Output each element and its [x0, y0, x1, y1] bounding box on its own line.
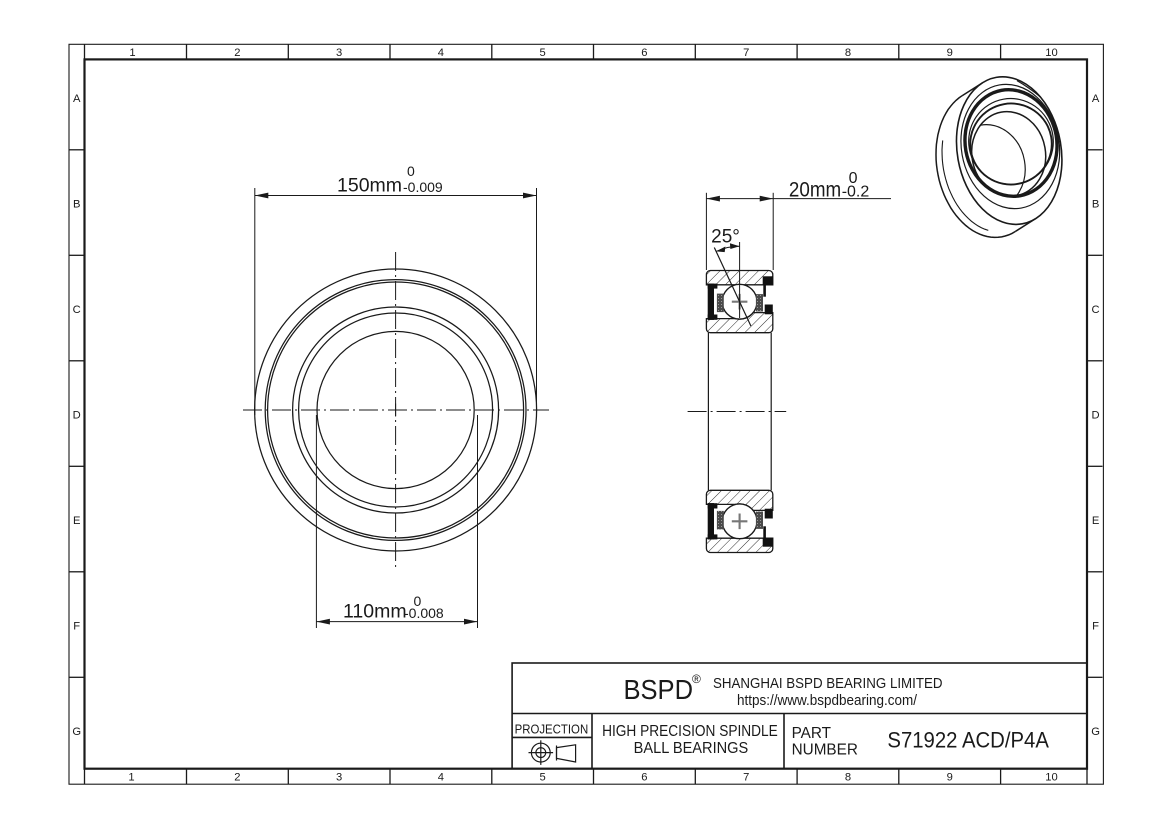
svg-text:HIGH PRECISION SPINDLE: HIGH PRECISION SPINDLE [602, 723, 778, 740]
svg-text:25°: 25° [711, 227, 740, 248]
svg-text:BALL BEARINGS: BALL BEARINGS [634, 740, 749, 757]
svg-text:110mm: 110mm [343, 601, 407, 623]
svg-text:4: 4 [438, 772, 444, 784]
svg-text:-0.008: -0.008 [404, 605, 444, 621]
svg-text:F: F [1092, 620, 1099, 632]
svg-text:E: E [73, 515, 80, 527]
svg-text:1: 1 [129, 47, 135, 59]
svg-text:A: A [1092, 93, 1100, 105]
svg-text:5: 5 [539, 47, 545, 59]
svg-text:F: F [73, 620, 80, 632]
svg-text:PART: PART [792, 725, 831, 742]
svg-text:G: G [72, 726, 81, 738]
svg-text:9: 9 [947, 47, 953, 59]
svg-text:10: 10 [1045, 47, 1057, 59]
svg-text:6: 6 [641, 772, 647, 784]
svg-text:SHANGHAI BSPD BEARING LIMITED: SHANGHAI BSPD BEARING LIMITED [713, 676, 943, 692]
svg-text:D: D [1092, 409, 1100, 421]
svg-text:2: 2 [234, 47, 240, 59]
svg-text:-0.2: -0.2 [842, 184, 870, 201]
svg-text:B: B [1092, 198, 1099, 210]
svg-text:A: A [73, 93, 81, 105]
svg-text:1: 1 [128, 772, 134, 784]
svg-text:G: G [1091, 726, 1100, 738]
svg-text:8: 8 [845, 47, 851, 59]
svg-text:3: 3 [336, 772, 342, 784]
svg-text:C: C [73, 304, 81, 316]
svg-text:3: 3 [336, 47, 342, 59]
svg-text:9: 9 [947, 772, 953, 784]
svg-text:0: 0 [407, 163, 415, 179]
svg-text:C: C [1092, 304, 1100, 316]
svg-text:2: 2 [234, 772, 240, 784]
svg-text:7: 7 [743, 47, 749, 59]
svg-text:BSPD: BSPD [624, 674, 694, 705]
svg-text:E: E [1092, 515, 1099, 527]
svg-text:10: 10 [1045, 772, 1057, 784]
svg-text:B: B [73, 198, 80, 210]
svg-text:150mm: 150mm [337, 175, 402, 197]
svg-text:®: ® [692, 672, 701, 686]
svg-text:8: 8 [845, 772, 851, 784]
svg-text:20mm: 20mm [789, 179, 841, 202]
svg-text:4: 4 [438, 47, 444, 59]
svg-text:S71922 ACD/P4A: S71922 ACD/P4A [887, 728, 1049, 753]
svg-text:7: 7 [743, 772, 749, 784]
svg-text:6: 6 [641, 47, 647, 59]
svg-text:https://www.bspdbearing.com/: https://www.bspdbearing.com/ [737, 693, 918, 709]
svg-text:5: 5 [539, 772, 545, 784]
svg-text:NUMBER: NUMBER [792, 741, 858, 758]
svg-text:-0.009: -0.009 [403, 179, 443, 195]
svg-text:PROJECTION: PROJECTION [515, 723, 589, 737]
svg-text:D: D [73, 409, 81, 421]
